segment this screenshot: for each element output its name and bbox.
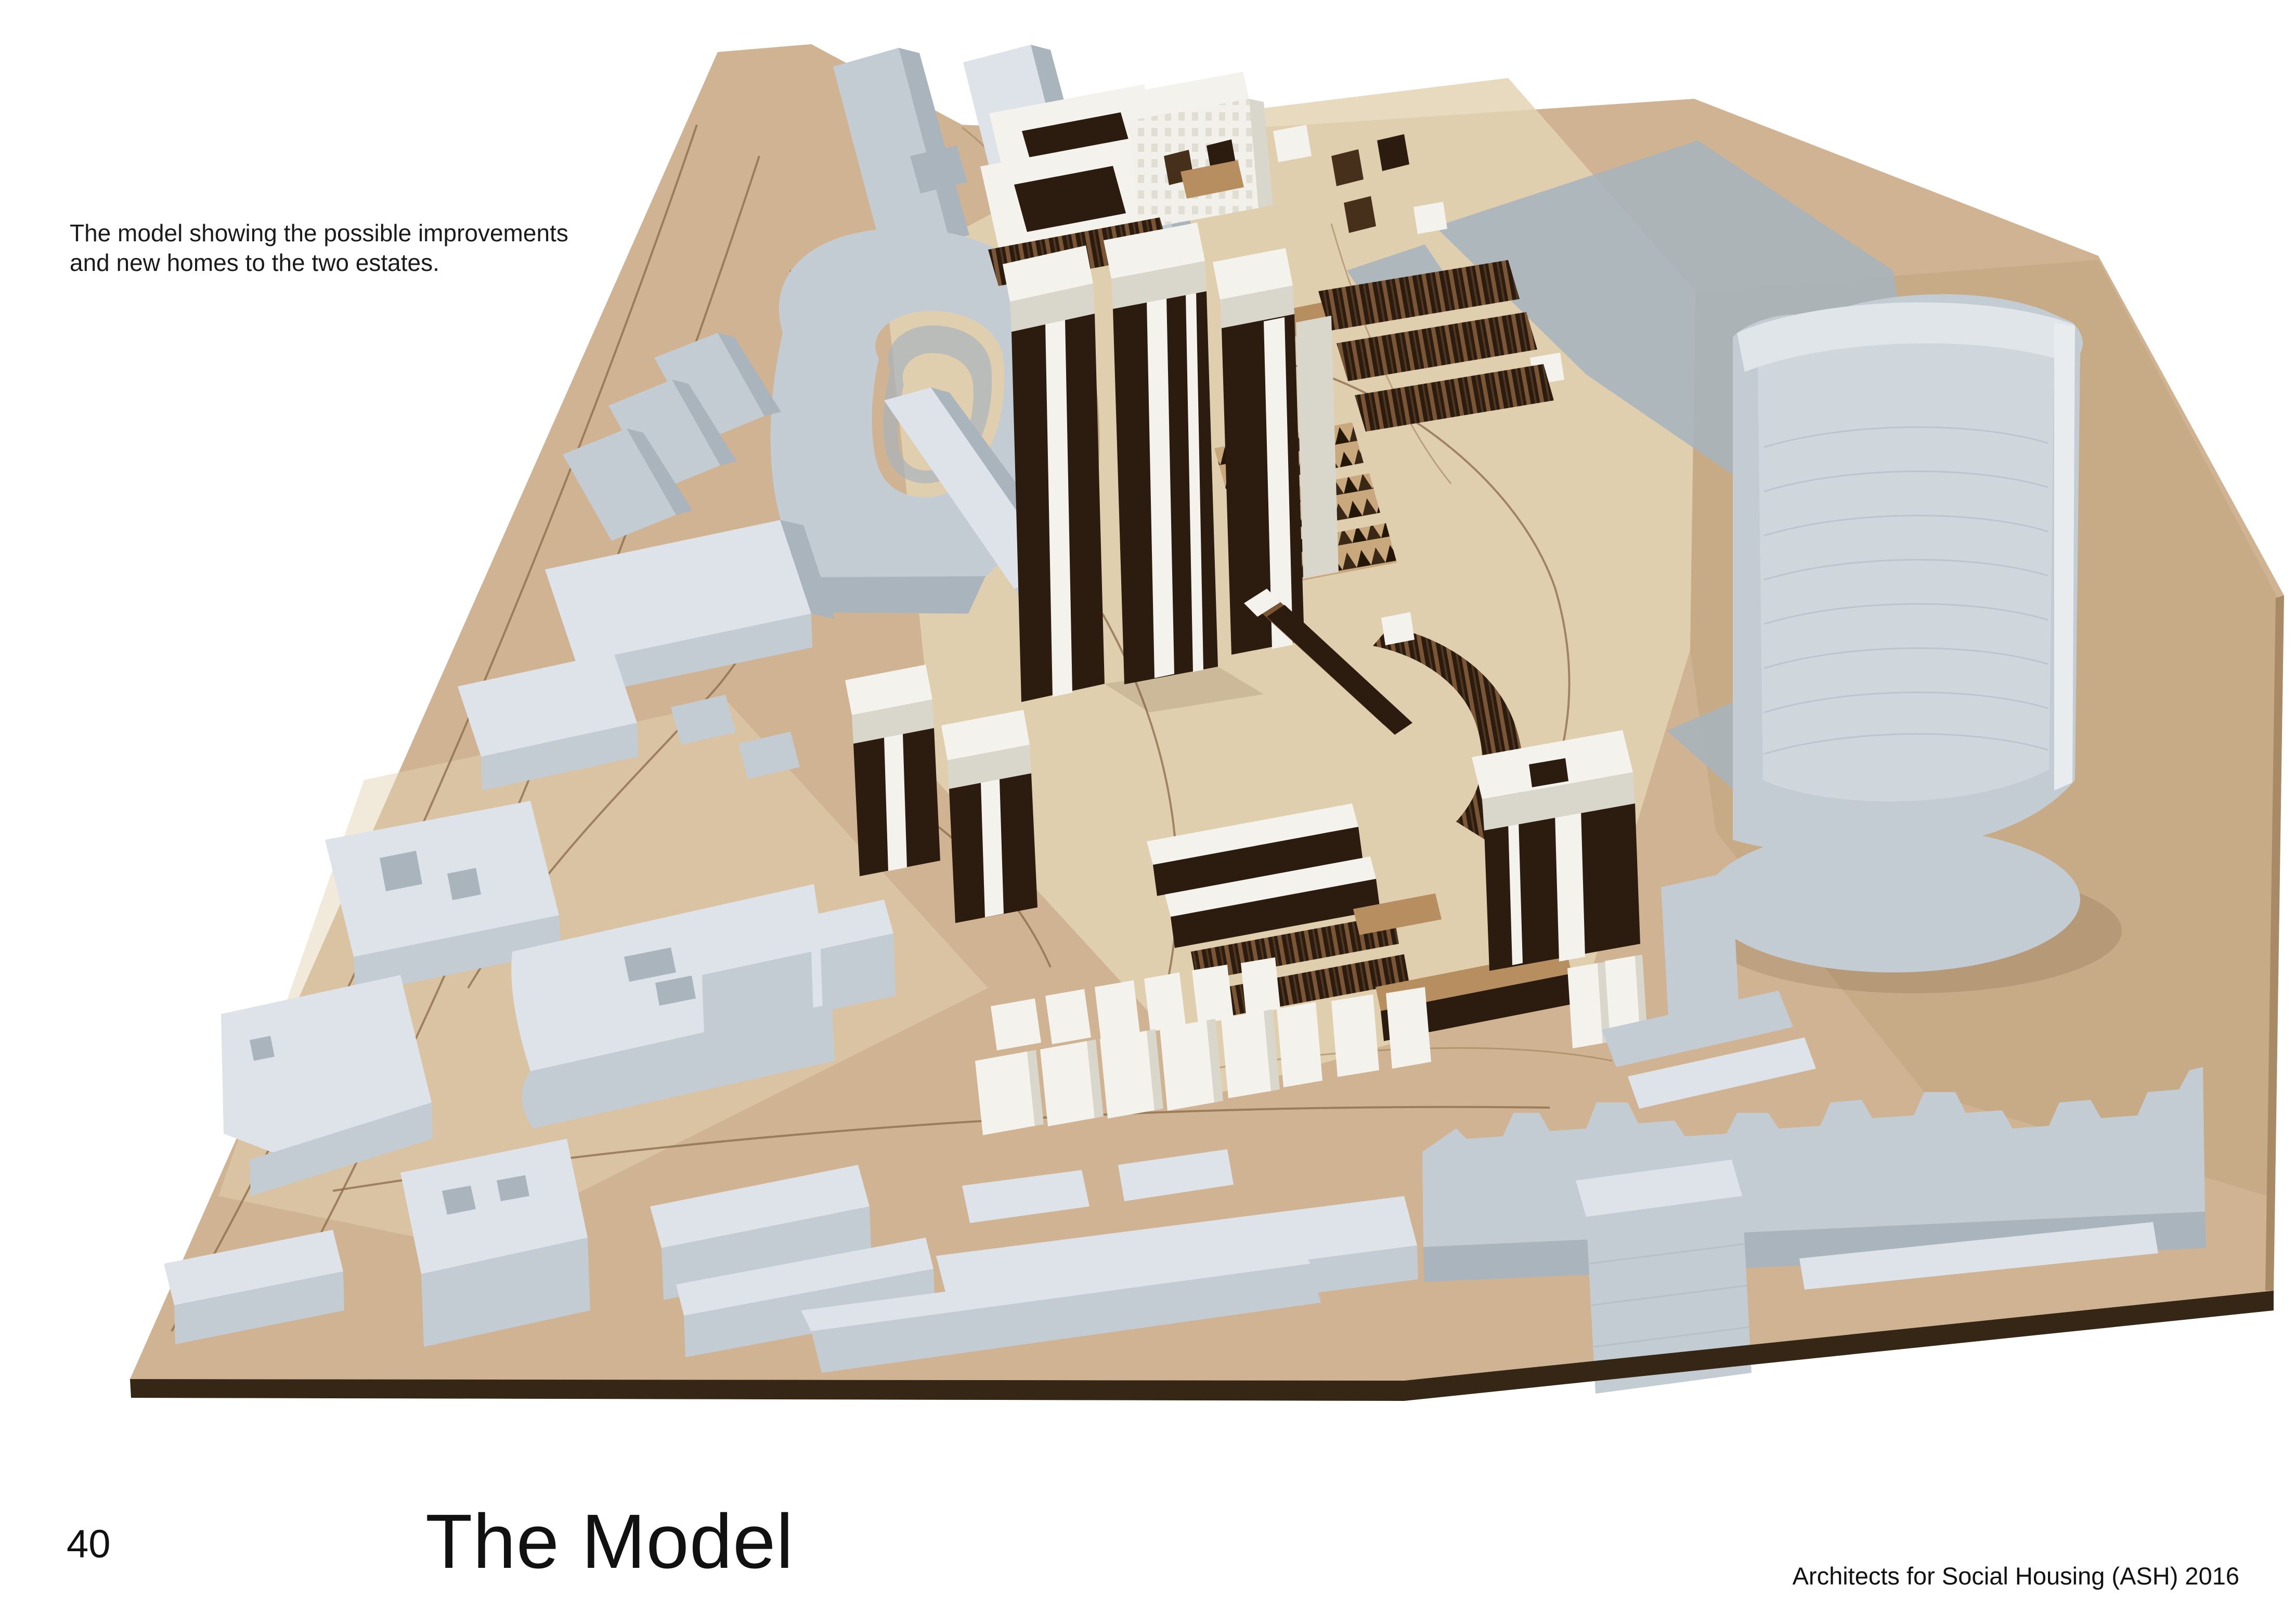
photo-caption-line2: and new homes to the two estates. [70, 248, 568, 278]
photo-caption-line1: The model showing the possible improveme… [70, 218, 568, 248]
credit-line: Architects for Social Housing (ASH) 2016 [1793, 1562, 2239, 1590]
page-number: 40 [67, 1522, 111, 1567]
photo-caption: The model showing the possible improveme… [70, 218, 568, 278]
document-page: Thaxton Rd [0, 0, 2296, 1624]
page-title: The Model [425, 1498, 794, 1586]
